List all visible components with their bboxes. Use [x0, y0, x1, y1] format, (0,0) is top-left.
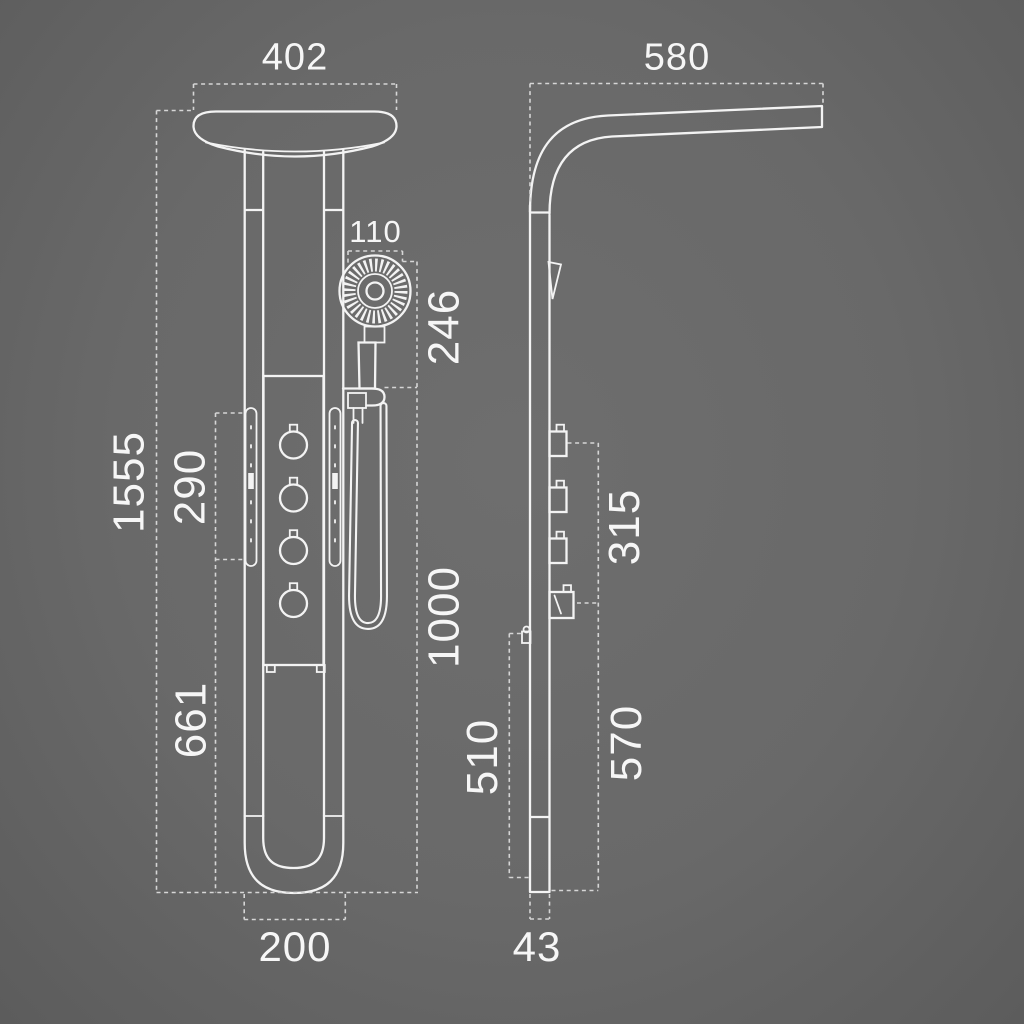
arm-outline: [530, 106, 822, 214]
dim-label-arm-projection: 580: [644, 37, 710, 79]
side-diverter: [550, 585, 574, 618]
dim-label-hand-shower-height: 246: [420, 289, 469, 365]
rain-shower-head: [194, 112, 397, 157]
dim-label-valve-section-height: 315: [600, 489, 649, 565]
dim-hand-shower-height-and-hose: 246 1000: [385, 262, 469, 893]
hose-outer: [352, 406, 384, 626]
shower-arm-profile: [530, 106, 822, 214]
dim-lines: [385, 262, 418, 893]
dim-label-holder-to-base-height: 510: [458, 719, 507, 795]
shower-hose: [352, 406, 384, 626]
jet-strip-left: [246, 408, 257, 566]
diverter-lever: [555, 596, 562, 614]
holder-hook: [343, 389, 385, 406]
knob-side-body: [550, 539, 567, 564]
hand-shower-inner-ring: [358, 274, 392, 308]
dim-label-base-width: 200: [258, 923, 331, 970]
dim-base-width: 200: [244, 894, 345, 970]
shower-panel-dimension-drawing: 402 1555 290 661 110 246 1000 200: [0, 0, 1024, 1024]
panel-profile-lines: [530, 205, 550, 892]
dim-lines: [552, 443, 599, 891]
hand-shower-handle: [359, 343, 376, 389]
dim-lines: [530, 894, 550, 919]
control-knob-3: [280, 530, 307, 564]
dim-holder-to-base: 510: [458, 634, 530, 878]
dim-lines: [194, 84, 397, 110]
dim-lines: [509, 634, 529, 878]
side-knob-2: [550, 481, 567, 512]
hand-shower: [340, 256, 411, 389]
control-panel: [264, 376, 325, 672]
knob-circle: [280, 537, 307, 564]
jet-strip-notch: [332, 473, 338, 489]
jet-strip-right: [330, 408, 341, 566]
knob-circle: [280, 485, 307, 512]
u-bend-inner: [263, 816, 324, 868]
hand-shower-center: [367, 283, 384, 300]
control-panel-face: [264, 376, 324, 665]
u-bend-outer: [245, 816, 344, 893]
holder-cup: [348, 393, 366, 408]
knob-side-body: [550, 432, 567, 457]
dim-head-width: 402: [194, 37, 397, 111]
base-u-bend: [245, 816, 344, 893]
side-panel-profile: [530, 205, 550, 892]
dim-label-profile-depth: 43: [513, 923, 562, 970]
control-knob-2: [280, 478, 307, 512]
rain-head-outline: [194, 112, 397, 157]
hand-shower-holder: [343, 389, 385, 424]
hand-shower-neck: [365, 327, 385, 343]
jet-strip-notch: [248, 473, 254, 489]
control-knob-4: [280, 583, 307, 617]
side-knob-3: [550, 532, 567, 563]
dim-label-jet-panel-height: 290: [166, 449, 215, 525]
column-rails: [245, 150, 344, 816]
dim-label-head-width: 402: [262, 37, 328, 79]
dim-lines: [216, 413, 245, 893]
dim-profile-depth: 43: [513, 894, 562, 970]
dim-jet-panel-and-lower: 290 661: [166, 413, 245, 893]
dim-lines: [244, 894, 345, 920]
left-rail: [245, 150, 264, 816]
dim-label-lower-section-height: 661: [167, 682, 216, 758]
front-view: 402 1555 290 661 110 246 1000 200: [105, 37, 469, 971]
control-knob-1: [280, 425, 307, 459]
dim-arm-projection: 580: [530, 37, 823, 204]
dim-label-hand-shower-width: 110: [349, 214, 401, 249]
hand-shower-nozzle-ring: [349, 265, 401, 317]
side-view: 580 315 570 510 43: [458, 37, 823, 971]
technical-drawing-canvas: 402 1555 290 661 110 246 1000 200: [0, 0, 1024, 1024]
dim-lines: [530, 84, 823, 204]
knob-circle: [280, 432, 307, 459]
dim-label-diverter-to-base-height: 570: [602, 705, 651, 781]
knob-side-body: [550, 488, 567, 513]
side-knob-1: [550, 425, 567, 456]
dim-label-hose-section-height: 1000: [420, 566, 469, 668]
dim-label-total-height: 1555: [105, 431, 154, 533]
knob-circle: [280, 590, 307, 617]
